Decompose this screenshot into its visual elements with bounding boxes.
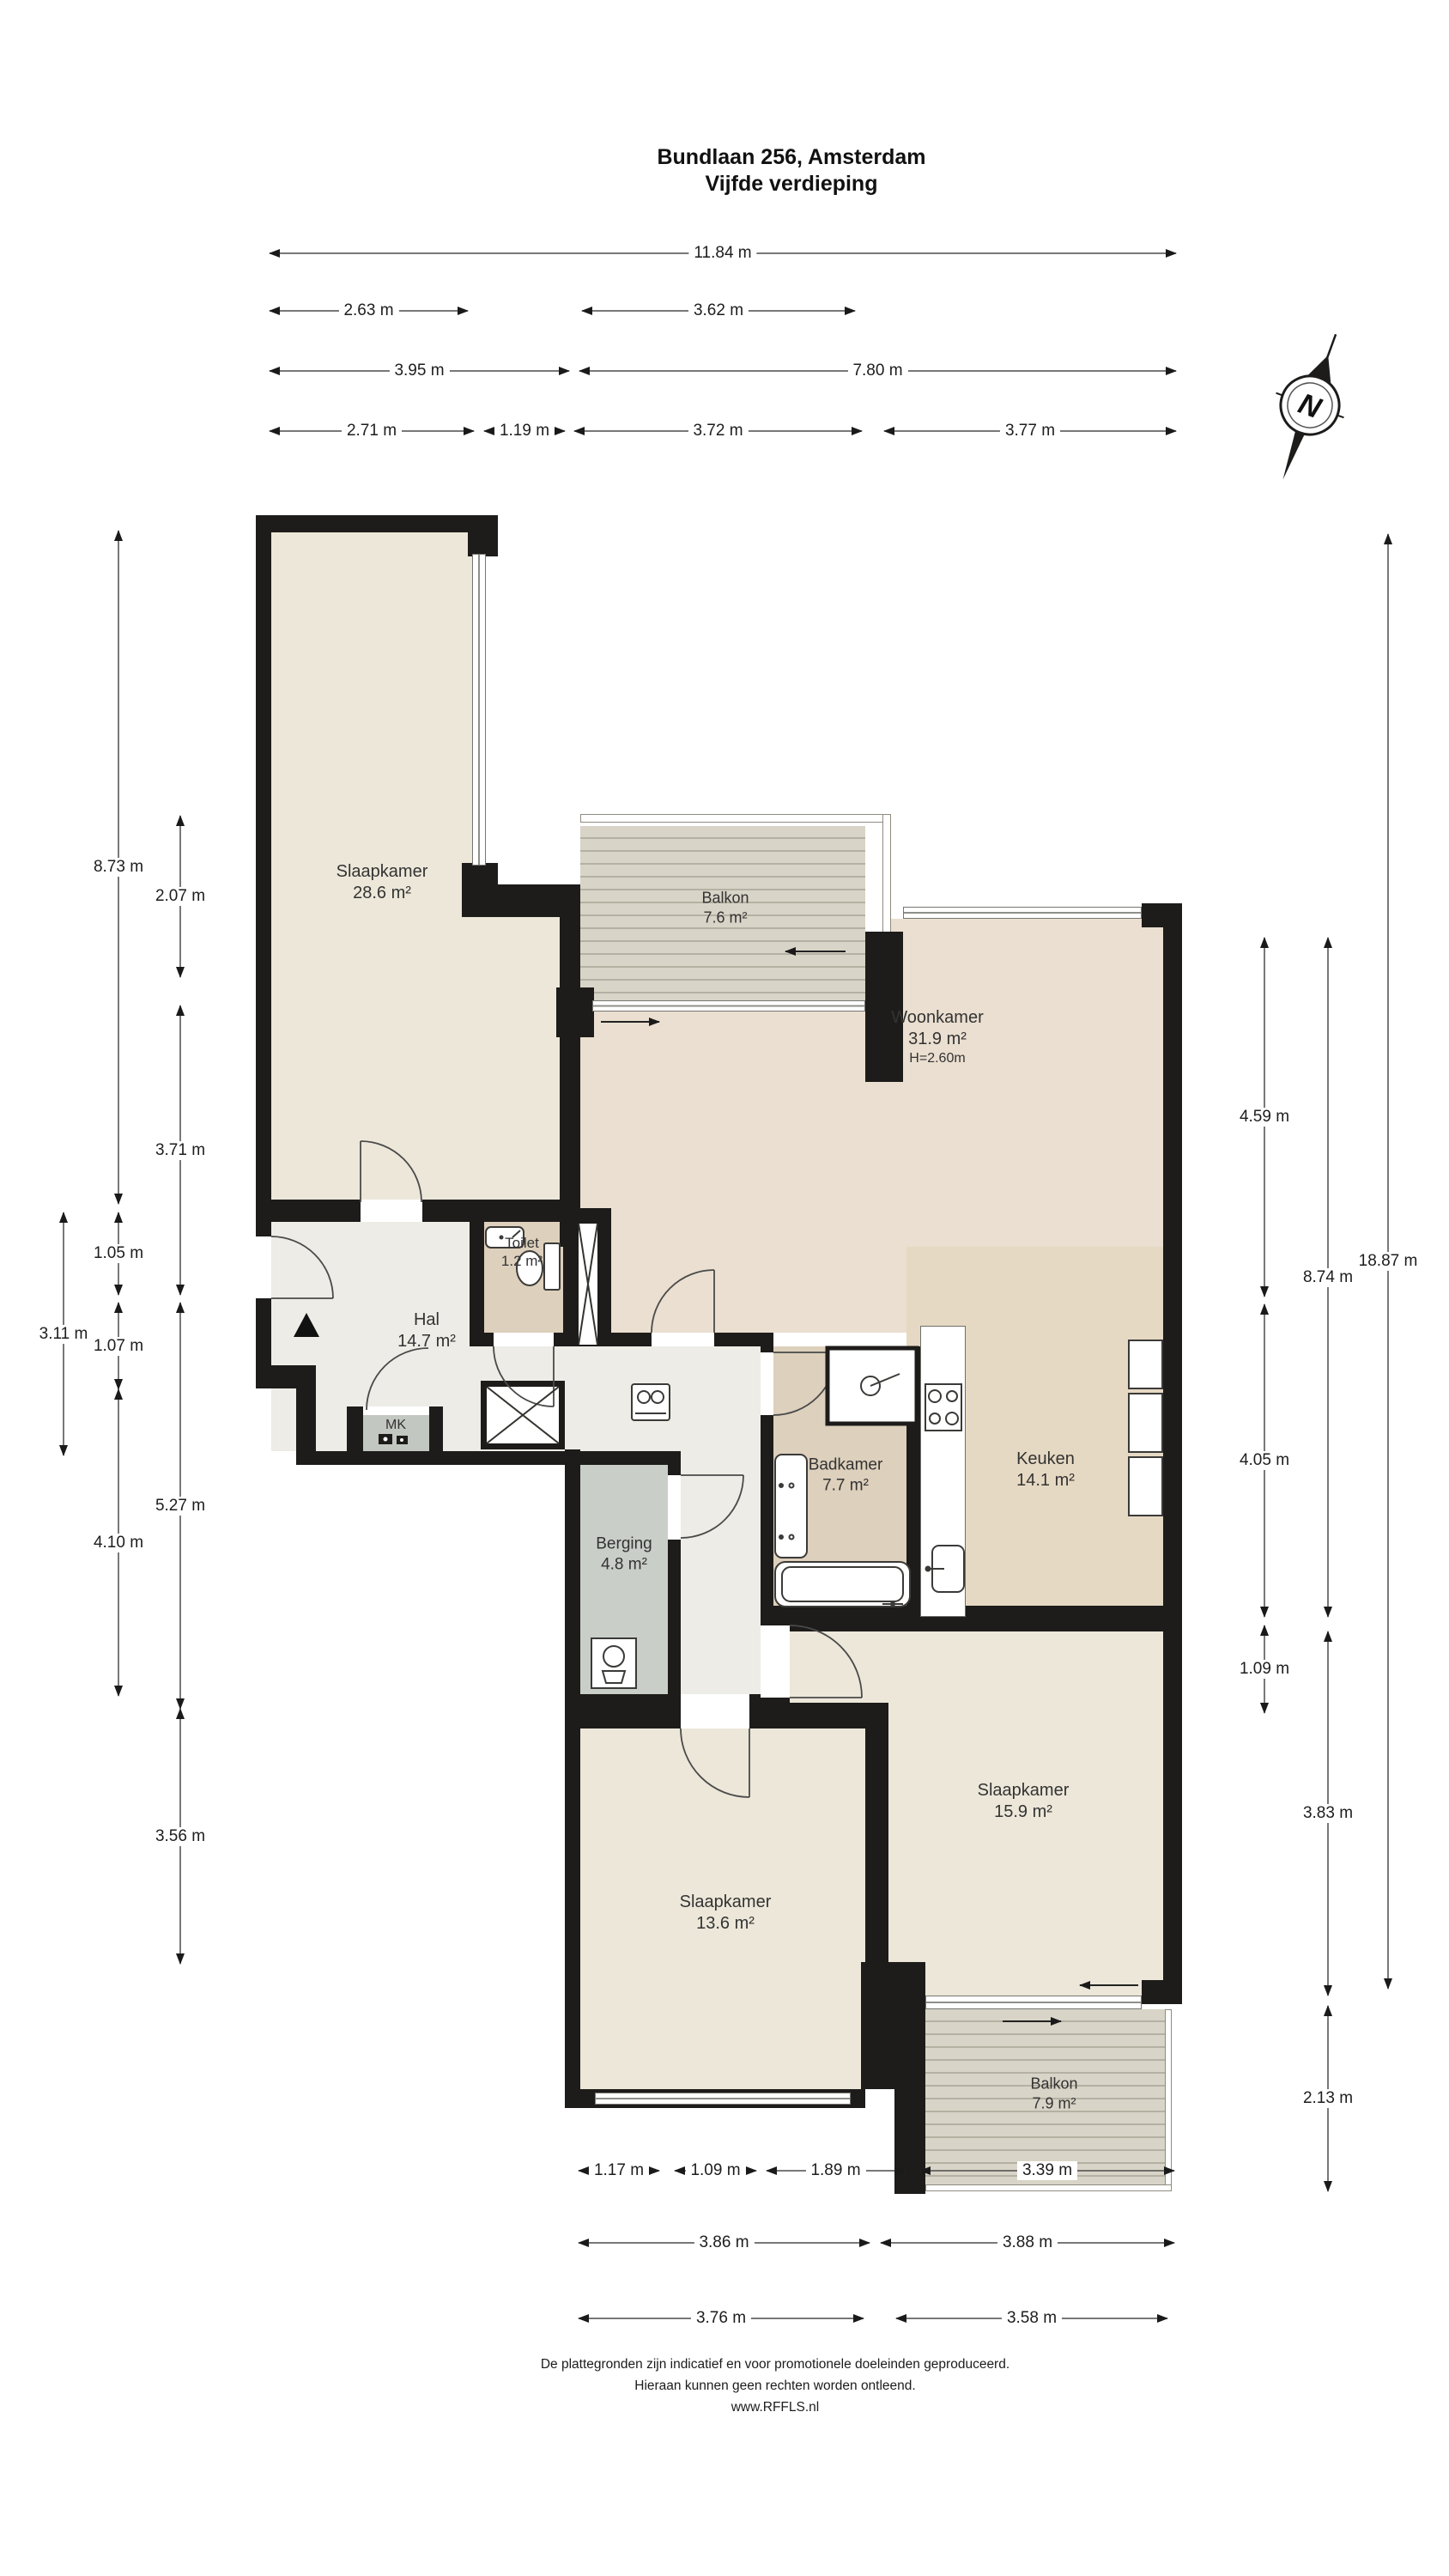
dimension-label: 8.73 m	[88, 858, 149, 877]
wall	[865, 932, 903, 1082]
wall	[565, 1694, 790, 1728]
dimension-label: 3.95 m	[389, 361, 449, 380]
dimension-label: 3.71 m	[150, 1141, 210, 1160]
kitchen-appliance	[1128, 1456, 1163, 1516]
dimension-label: 3.72 m	[688, 422, 748, 440]
wall	[470, 1208, 611, 1222]
door-opening	[361, 1200, 422, 1222]
room-fill-slaapkamer-3b	[888, 1728, 1163, 1996]
compass-rose-icon: N	[1249, 322, 1369, 492]
north-label: N	[1294, 387, 1326, 426]
plan-title: Bundlaan 256, Amsterdam Vijfde verdiepin…	[657, 144, 925, 197]
window	[472, 554, 486, 866]
room-fill-badkamer	[773, 1346, 919, 1617]
dimension-label: 1.19 m	[494, 422, 555, 440]
dimension-label: 3.11 m	[34, 1325, 94, 1344]
dimension-label: 2.07 m	[150, 887, 210, 906]
dimension-label: 3.76 m	[691, 2309, 751, 2328]
room-fill-hal-4	[681, 1468, 761, 1694]
wall	[486, 884, 580, 917]
dimension-label: 3.88 m	[997, 2233, 1058, 2252]
wall	[865, 1728, 888, 1962]
dimension-label: 3.56 m	[150, 1827, 210, 1846]
wall	[1163, 903, 1182, 2004]
room-fill-toilet	[484, 1222, 563, 1333]
duct-shaft	[577, 1222, 599, 1346]
sliding-door	[925, 1996, 1142, 2009]
wall	[761, 1606, 1181, 1631]
window	[595, 2093, 851, 2105]
wall	[429, 1406, 443, 1451]
elevator-shaft	[481, 1381, 565, 1449]
wall	[1142, 1980, 1163, 2004]
door-opening	[761, 1625, 790, 1698]
wall	[599, 1222, 611, 1346]
dimension-label: 3.58 m	[1002, 2309, 1062, 2328]
room-fill-slaapkamer-1b	[477, 917, 560, 1200]
room-fill-slaapkamer-1	[271, 532, 477, 1200]
dimension-label: 1.89 m	[805, 2161, 865, 2180]
wall	[565, 1449, 580, 2108]
door-opening	[681, 1694, 749, 1728]
wall	[256, 1365, 316, 1388]
dimension-label: 1.07 m	[88, 1337, 149, 1356]
kitchen-appliance	[1128, 1340, 1163, 1389]
plan-title-floor: Vijfde verdieping	[657, 171, 925, 197]
dimension-label: 3.83 m	[1298, 1804, 1358, 1823]
plan-footer: De plattegronden zijn indicatief en voor…	[541, 2354, 1009, 2418]
balcony-railing	[580, 814, 889, 823]
floor-plan-canvas: Bundlaan 256, Amsterdam Vijfde verdiepin…	[0, 0, 1449, 2576]
balcony-railing	[882, 814, 891, 939]
wall	[296, 1388, 316, 1453]
wall	[560, 917, 580, 1247]
dimension-label: 1.17 m	[589, 2161, 649, 2180]
wall	[256, 515, 498, 532]
dimension-label: 18.87 m	[1354, 1252, 1423, 1271]
room-fill-woonkamer-a	[888, 919, 1163, 1015]
wall	[470, 1222, 484, 1346]
dimension-label: 3.86 m	[694, 2233, 754, 2252]
wall	[861, 1962, 894, 2089]
dimension-label: 2.13 m	[1298, 2089, 1358, 2108]
room-fill-berging	[578, 1461, 668, 1694]
door-opening	[668, 1475, 681, 1540]
footer-website: www.RFFLS.nl	[541, 2397, 1009, 2419]
wall	[790, 1703, 888, 1728]
kitchen-appliance	[1128, 1393, 1163, 1453]
kitchen-counter	[920, 1326, 966, 1617]
window	[903, 907, 1142, 919]
room-fill-slaapkamer-2	[580, 1728, 865, 2089]
room-fill-meterkast	[363, 1412, 429, 1451]
wall	[296, 1451, 681, 1465]
dimension-label: 2.71 m	[342, 422, 402, 440]
dimension-label: 8.74 m	[1298, 1268, 1358, 1287]
room-fill-hal-3	[611, 1346, 761, 1468]
wall	[556, 987, 594, 1037]
door-opening	[494, 1333, 554, 1346]
balcony-railing	[1165, 2009, 1172, 2191]
dimension-label: 1.05 m	[88, 1244, 149, 1263]
dimension-label: 3.62 m	[688, 301, 749, 320]
wall	[468, 532, 498, 556]
door-opening	[363, 1406, 429, 1415]
dimension-label: 7.80 m	[847, 361, 907, 380]
footer-disclaimer-2: Hieraan kunnen geen rechten worden ontle…	[541, 2376, 1009, 2397]
dimension-label: 2.63 m	[338, 301, 398, 320]
dimension-label: 3.77 m	[1000, 422, 1060, 440]
plan-title-address: Bundlaan 256, Amsterdam	[657, 144, 925, 171]
door-opening-entrance	[256, 1236, 271, 1298]
balcony-deck-2	[925, 2009, 1165, 2189]
balcony-railing	[925, 2184, 1172, 2191]
footer-disclaimer-1: De plattegronden zijn indicatief en voor…	[541, 2354, 1009, 2376]
dimension-label: 4.59 m	[1234, 1108, 1294, 1127]
door-opening	[761, 1352, 773, 1415]
sliding-door	[592, 1000, 865, 1012]
dimension-label: 4.05 m	[1234, 1451, 1294, 1470]
dimension-label: 11.84 m	[688, 244, 756, 263]
wall	[347, 1406, 363, 1451]
dimension-label: 1.09 m	[685, 2161, 745, 2180]
wall	[906, 1346, 920, 1617]
wall	[563, 1222, 577, 1346]
dimension-label: 4.10 m	[88, 1534, 149, 1552]
dimension-label: 1.09 m	[1234, 1660, 1294, 1679]
dimension-label: 5.27 m	[150, 1497, 210, 1516]
balcony-deck-1	[580, 826, 865, 1000]
wall	[894, 1962, 925, 2194]
door-opening	[652, 1333, 714, 1346]
